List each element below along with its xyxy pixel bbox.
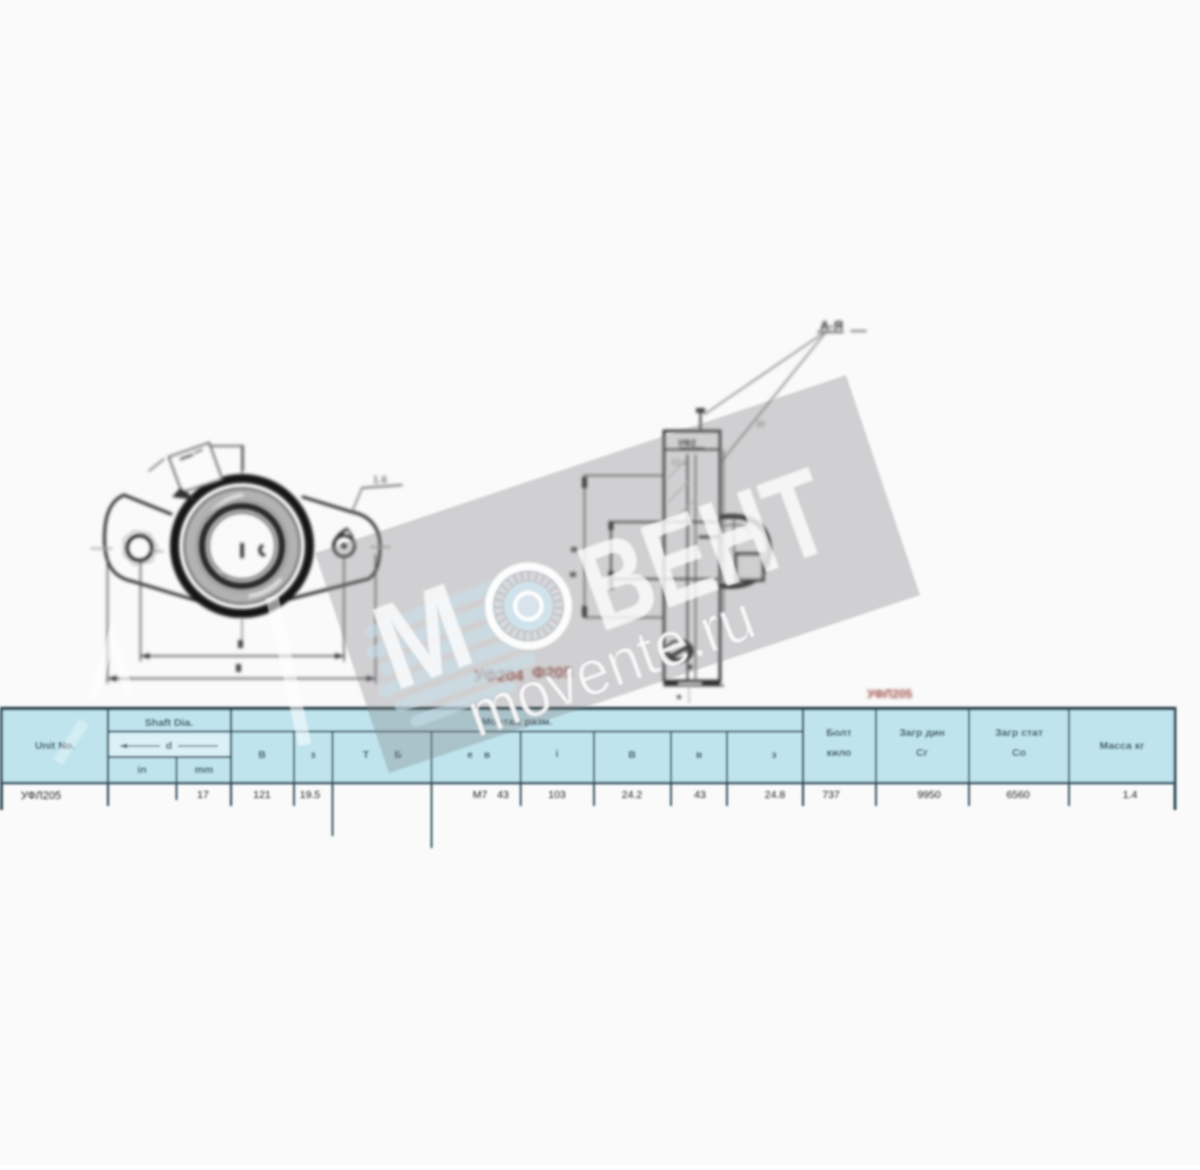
svg-text:Загр дин: Загр дин: [899, 727, 945, 739]
svg-text:В: В: [628, 749, 636, 761]
svg-text:Масса кг: Масса кг: [1100, 740, 1146, 752]
svg-text:in: in: [137, 764, 146, 776]
svg-text:М7: М7: [473, 789, 488, 801]
svg-text:Т: Т: [363, 749, 370, 761]
svg-text:УФЛ205: УФЛ205: [21, 790, 61, 802]
svg-text:103: 103: [548, 789, 566, 801]
svg-text:43: 43: [694, 789, 706, 801]
svg-text:i: i: [556, 748, 559, 760]
svg-text:d: d: [166, 740, 172, 752]
svg-text:1.6: 1.6: [373, 475, 387, 486]
svg-text:кило: кило: [827, 747, 852, 759]
svg-text:9950: 9950: [917, 789, 941, 801]
svg-text:Загр стат: Загр стат: [995, 727, 1043, 739]
svg-text:121: 121: [253, 789, 271, 801]
svg-text:19.5: 19.5: [300, 789, 321, 801]
svg-text:Со: Со: [1012, 747, 1026, 759]
svg-text:737: 737: [822, 789, 840, 801]
svg-text:6560: 6560: [1006, 789, 1030, 801]
svg-text:з: з: [310, 749, 315, 761]
svg-text:mm: mm: [195, 764, 214, 776]
svg-text:УФЛ205: УФЛ205: [867, 687, 913, 701]
svg-text:в: в: [696, 749, 703, 761]
svg-text:В: В: [258, 749, 266, 761]
svg-text:Shaft Dia.: Shaft Dia.: [145, 717, 194, 729]
svg-text:е: е: [467, 749, 473, 761]
svg-text:17: 17: [197, 789, 209, 801]
svg-text:24.8: 24.8: [765, 789, 786, 801]
svg-text:43: 43: [497, 789, 509, 801]
svg-text:А-Я: А-Я: [820, 318, 843, 333]
svg-text:24.2: 24.2: [622, 789, 643, 801]
svg-text:Сг: Сг: [916, 747, 929, 759]
svg-text:в: в: [484, 749, 491, 761]
svg-text:Болт: Болт: [826, 727, 852, 739]
svg-text:1.4: 1.4: [1123, 789, 1138, 801]
svg-text:з: з: [771, 749, 776, 761]
